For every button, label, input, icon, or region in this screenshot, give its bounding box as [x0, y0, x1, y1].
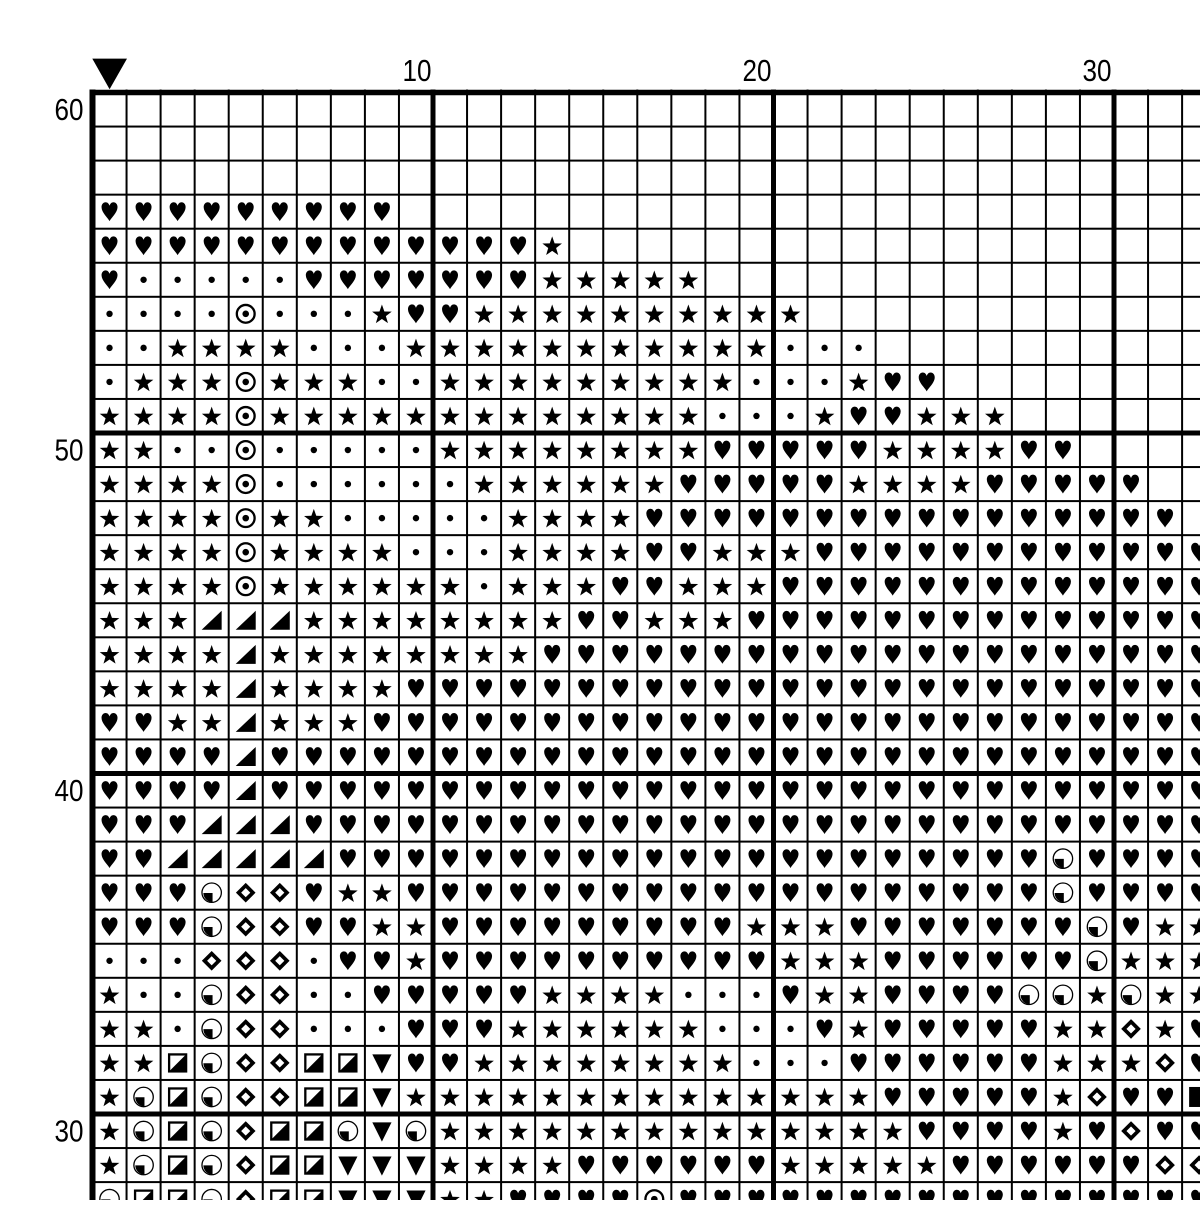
svg-text:40: 40 [55, 774, 84, 808]
svg-text:10: 10 [403, 54, 432, 88]
svg-text:20: 20 [743, 54, 772, 88]
svg-text:30: 30 [1083, 54, 1112, 88]
svg-text:60: 60 [55, 93, 84, 127]
svg-text:50: 50 [55, 434, 84, 468]
svg-text:30: 30 [55, 1115, 84, 1149]
